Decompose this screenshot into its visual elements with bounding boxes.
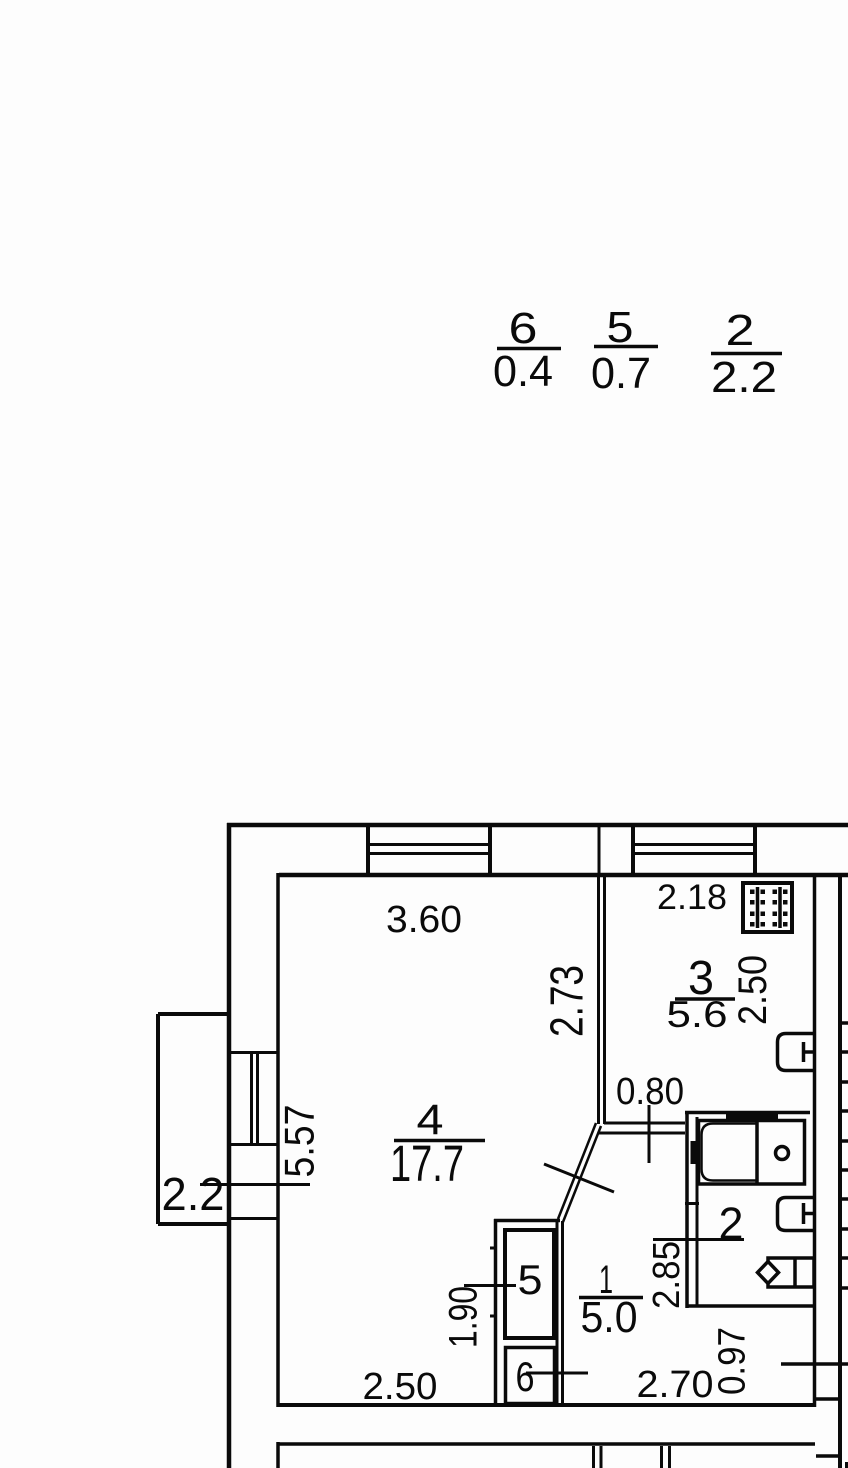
svg-text:6: 6	[509, 304, 538, 353]
svg-text:2.85: 2.85	[646, 1241, 688, 1309]
svg-text:0.7: 0.7	[591, 349, 651, 398]
svg-text:2.73: 2.73	[541, 965, 593, 1037]
svg-text:0.4: 0.4	[493, 347, 553, 396]
svg-text:5: 5	[518, 1256, 543, 1303]
svg-text:0.97: 0.97	[712, 1327, 754, 1395]
svg-text:0.80: 0.80	[616, 1071, 684, 1113]
svg-text:2.2: 2.2	[711, 353, 777, 402]
svg-text:2.2: 2.2	[162, 1168, 225, 1220]
svg-text:5.0: 5.0	[581, 1293, 638, 1342]
svg-text:3.60: 3.60	[386, 899, 462, 941]
svg-text:2.70: 2.70	[637, 1364, 714, 1406]
svg-text:2: 2	[726, 306, 755, 355]
svg-text:2: 2	[719, 1198, 744, 1249]
svg-text:5.6: 5.6	[667, 994, 728, 1035]
svg-text:1.90: 1.90	[442, 1286, 486, 1348]
svg-text:2.50: 2.50	[363, 1366, 438, 1408]
svg-text:2.50: 2.50	[731, 955, 775, 1025]
svg-text:5: 5	[607, 303, 634, 352]
svg-text:5.57: 5.57	[276, 1105, 323, 1178]
svg-text:2.18: 2.18	[657, 878, 727, 917]
svg-text:17.7: 17.7	[390, 1135, 464, 1192]
svg-text:6: 6	[516, 1353, 535, 1400]
